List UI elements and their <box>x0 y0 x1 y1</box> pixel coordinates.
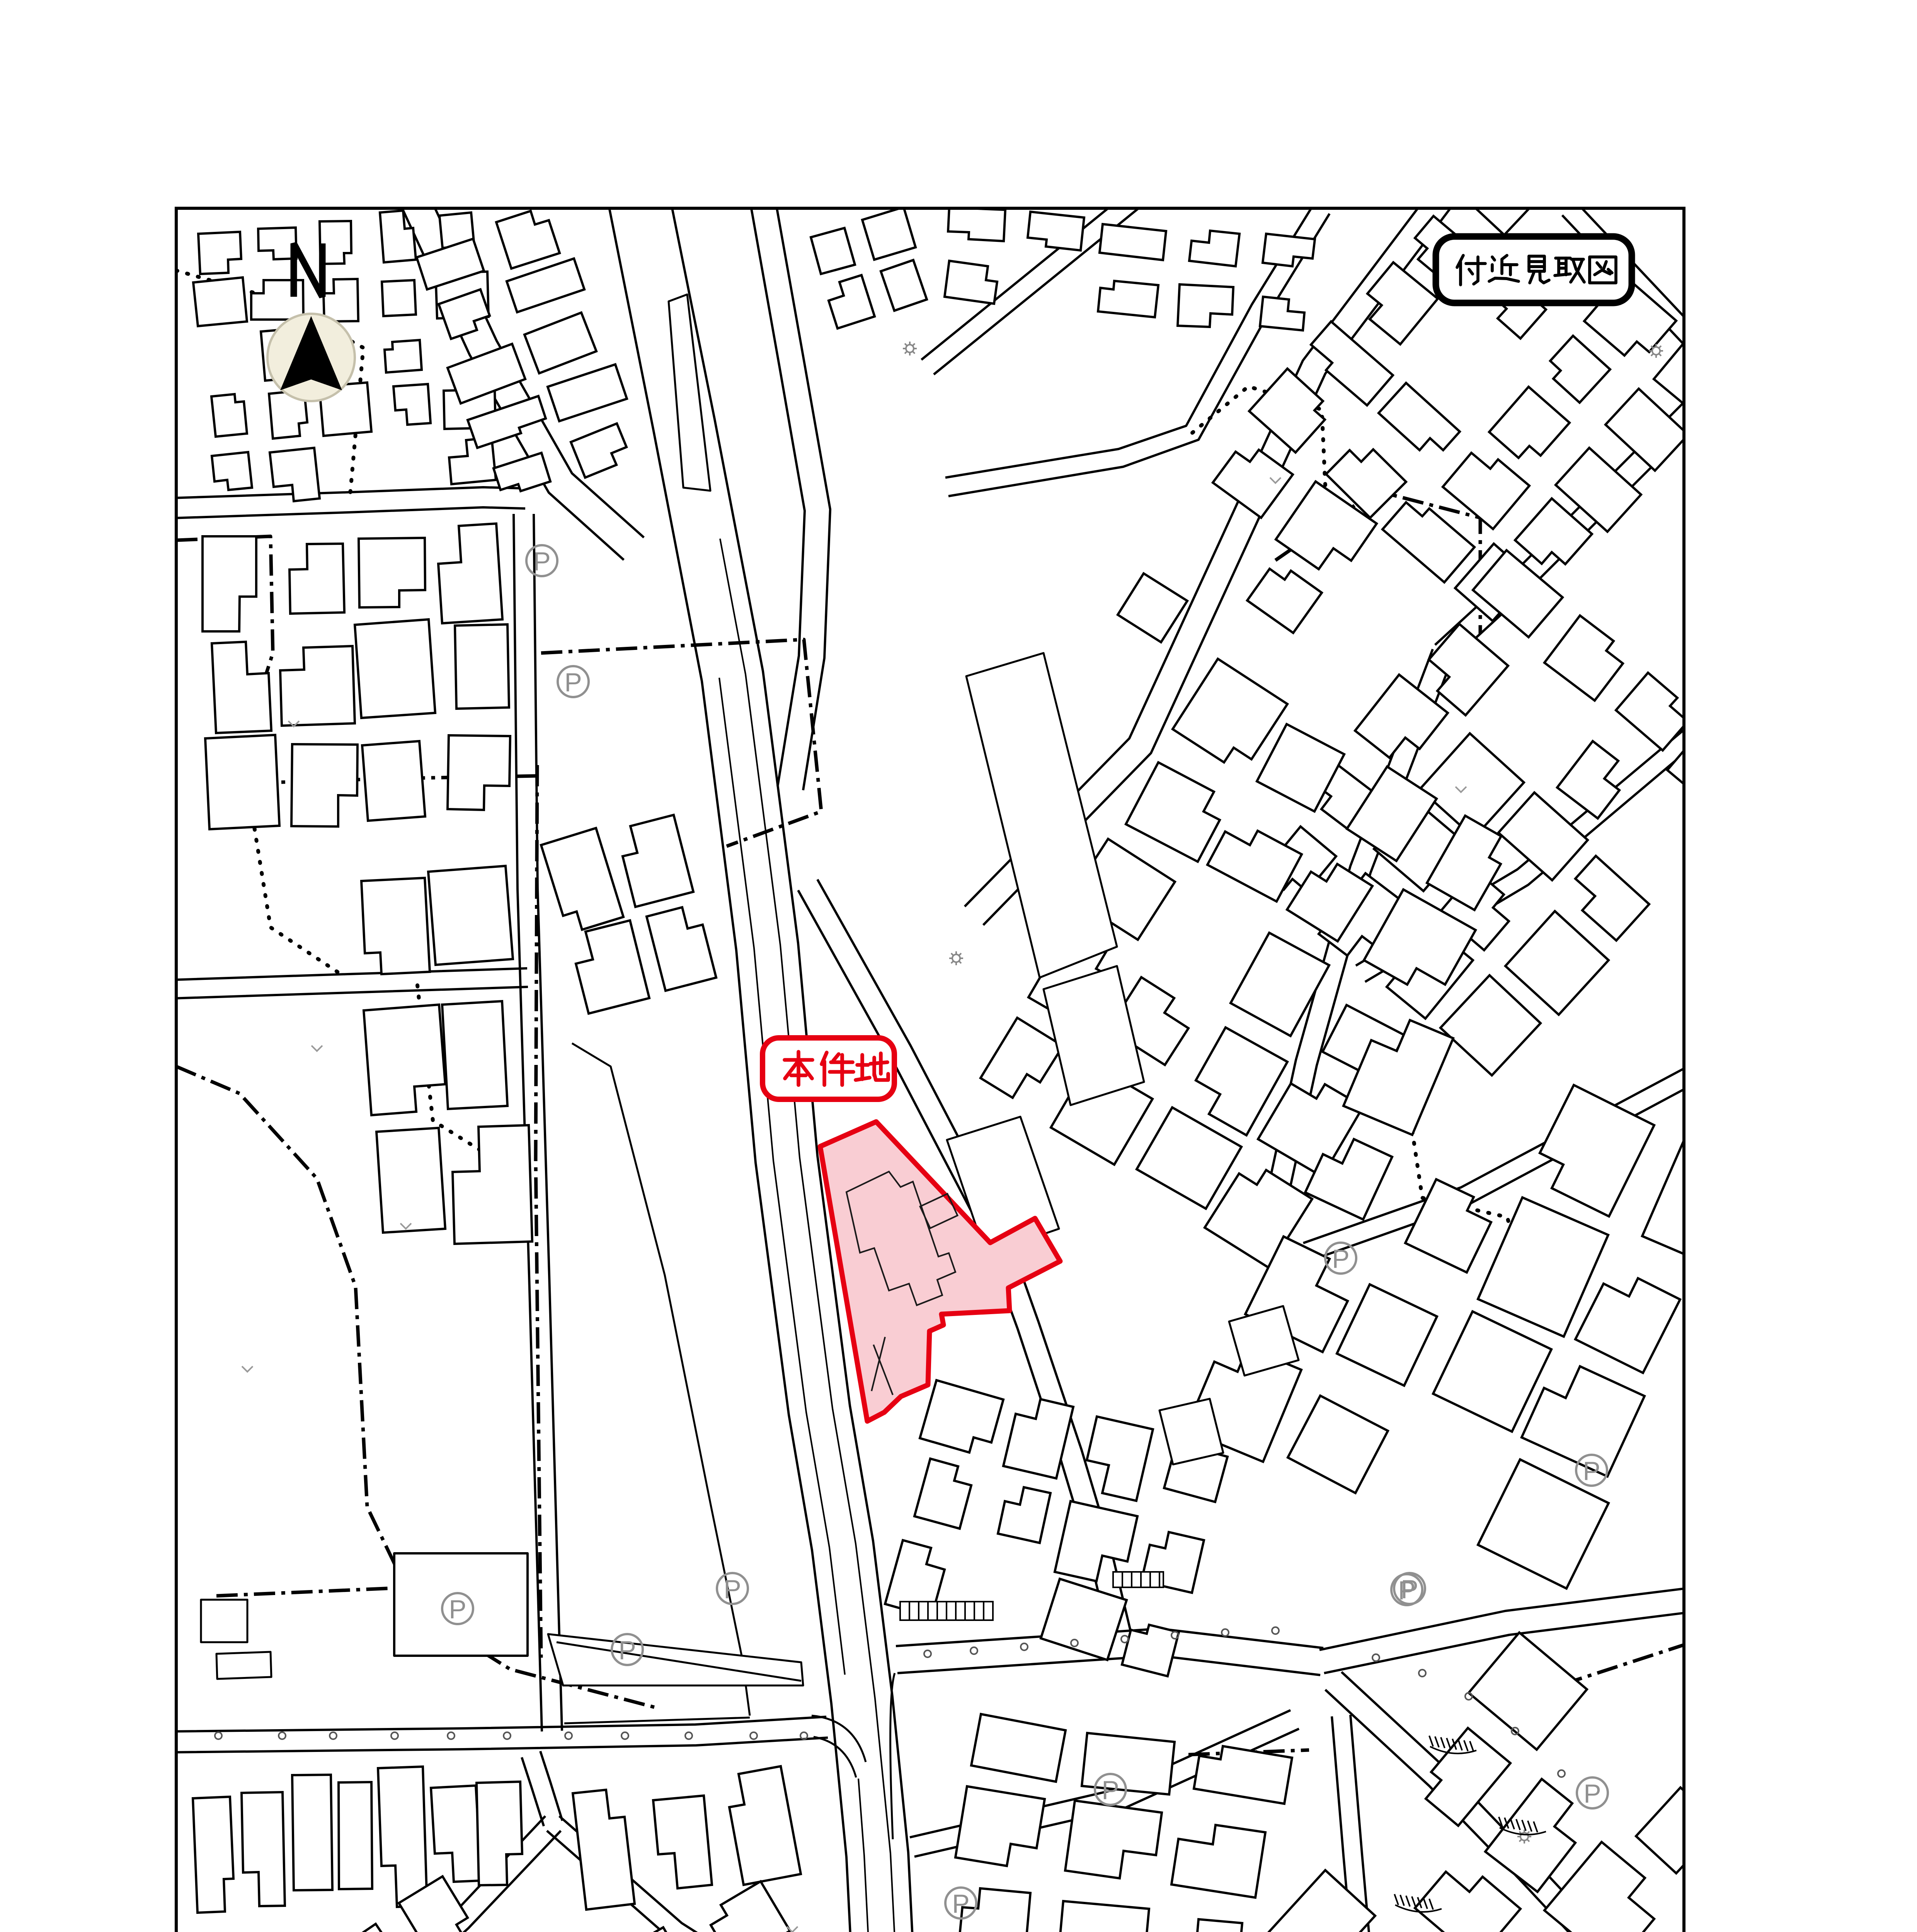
svg-text:P: P <box>952 1889 969 1918</box>
svg-text:P: P <box>1332 1244 1349 1274</box>
svg-text:P: P <box>1583 1456 1600 1486</box>
svg-text:P: P <box>1401 1575 1418 1604</box>
svg-text:P: P <box>1102 1776 1119 1805</box>
svg-text:P: P <box>724 1575 741 1604</box>
svg-text:P: P <box>533 547 550 576</box>
svg-text:P: P <box>1583 1779 1601 1808</box>
svg-text:P: P <box>449 1595 466 1624</box>
svg-text:P: P <box>564 668 582 697</box>
svg-text:P: P <box>618 1636 636 1665</box>
